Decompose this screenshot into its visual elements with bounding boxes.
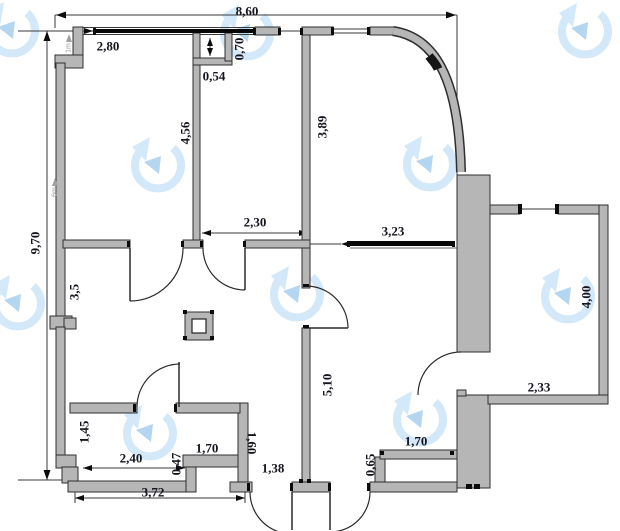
- dimension-label-wall-4-56: 4,56: [178, 121, 193, 144]
- dimension-label-hall-width: 2,30: [244, 215, 267, 230]
- windows-layer: [95, 29, 455, 246]
- watermark-circular-arrow-logo: [559, 3, 608, 54]
- watermark-circular-arrow-logo: [0, 275, 41, 326]
- dimension-label-overall-width: 8,60: [236, 4, 259, 19]
- door-arc-hall-right: [203, 248, 245, 290]
- marker-6m: 6m: [52, 187, 59, 197]
- dimension-label-cell-width: 1,70: [196, 441, 219, 456]
- door-arc-bathroom: [137, 364, 180, 407]
- floor-plan-drawing: 8,602,800,700,544,563,899,702,303,233,54…: [0, 0, 620, 531]
- dimension-label-dim-1-38: 1,38: [262, 461, 285, 476]
- dimension-label-niche-depth: 0,70: [232, 38, 247, 61]
- watermark-circular-arrow-logo: [404, 136, 453, 187]
- door-arc-exit-right: [330, 492, 370, 531]
- dimension-label-bath-width: 2,40: [120, 451, 143, 466]
- door-arc-exit-left: [250, 492, 292, 531]
- door-arc-right-block: [418, 352, 461, 395]
- dimension-label-bottom-width: 3,72: [142, 485, 165, 500]
- marker-1m: 1m: [66, 43, 73, 53]
- dimension-label-balcony-height: 4,00: [579, 286, 594, 309]
- dimension-label-room-width: 3,23: [382, 224, 405, 239]
- window-top: [95, 29, 255, 33]
- dimension-label-overall-height: 9,70: [28, 232, 43, 255]
- floor-plan-page: 8,602,800,700,544,563,899,702,303,233,54…: [0, 0, 620, 531]
- dimension-label-bar-width: 1,70: [405, 434, 428, 449]
- watermark-circular-arrow-logo: [0, 2, 35, 53]
- dimension-label-wall-5-10: 5,10: [320, 374, 335, 397]
- marker-arrow-icon: [66, 34, 72, 42]
- dimension-label-left-top-width: 2,80: [97, 39, 120, 54]
- dimension-label-balcony-width: 2,33: [528, 380, 551, 395]
- dimension-label-bar-height: 0,65: [363, 453, 378, 476]
- dimension-label-niche-width: 0,54: [203, 69, 226, 84]
- watermark-circular-arrow-logo: [271, 266, 320, 317]
- dimension-label-wall-3-89: 3,89: [315, 115, 330, 138]
- watermark-circular-arrow-logo: [132, 137, 181, 188]
- window-right-room: [350, 241, 455, 246]
- dimension-label-wall-3-5: 3,5: [67, 283, 82, 300]
- column: [183, 310, 214, 340]
- dimension-label-bath-height: 1,45: [77, 420, 92, 443]
- door-arc-hall-left: [130, 248, 183, 301]
- dimension-label-step-0-47: 0,47: [169, 452, 184, 475]
- dimension-label-cell-height: 1,60: [245, 432, 260, 455]
